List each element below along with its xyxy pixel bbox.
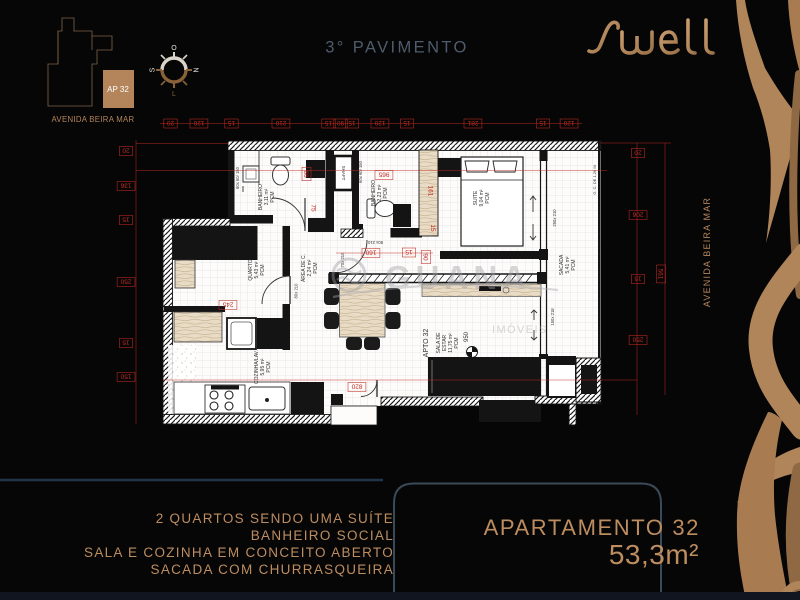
svg-text:206: 206 xyxy=(632,211,643,218)
svg-text:GUANA: GUANA xyxy=(385,259,531,296)
svg-text:AP 32: AP 32 xyxy=(107,85,129,94)
svg-text:L: L xyxy=(172,91,176,98)
svg-text:53,3m²: 53,3m² xyxy=(609,539,699,570)
svg-text:PCM: PCM xyxy=(485,192,491,203)
svg-text:15: 15 xyxy=(429,224,436,232)
svg-text:BANHEIRO SOCIAL: BANHEIRO SOCIAL xyxy=(251,528,394,543)
svg-text:80x 210: 80x 210 xyxy=(367,240,383,245)
svg-text:15: 15 xyxy=(122,339,130,346)
svg-text:PCM: PCM xyxy=(383,187,389,198)
svg-text:3° PAVIMENTO: 3° PAVIMENTO xyxy=(325,39,469,57)
svg-text:281: 281 xyxy=(467,119,478,126)
svg-text:20: 20 xyxy=(634,149,642,156)
svg-text:120: 120 xyxy=(563,119,574,126)
svg-text:G. C. DE 1,26 M: G. C. DE 1,26 M xyxy=(592,165,597,194)
svg-text:PCM: PCM xyxy=(266,361,272,372)
svg-text:561: 561 xyxy=(657,269,664,280)
svg-text:PCM: PCM xyxy=(454,337,460,348)
svg-text:90: 90 xyxy=(422,253,429,261)
svg-text:15: 15 xyxy=(634,275,642,282)
svg-text:80x 210: 80x 210 xyxy=(294,283,299,299)
svg-text:90: 90 xyxy=(337,119,345,126)
svg-text:S: S xyxy=(150,67,157,72)
svg-text:15: 15 xyxy=(325,119,333,126)
svg-text:15: 15 xyxy=(405,248,413,255)
svg-text:950: 950 xyxy=(464,331,470,342)
svg-text:60x 60/ 150: 60x 60/ 150 xyxy=(358,160,363,183)
svg-text:PCM: PCM xyxy=(571,259,577,270)
svg-text:SHAFT: SHAFT xyxy=(341,166,346,181)
svg-text:86: 86 xyxy=(302,170,309,178)
svg-text:150: 150 xyxy=(120,373,131,380)
svg-text:245: 245 xyxy=(222,301,233,308)
svg-text:AVENIDA BEIRA MAR: AVENIDA BEIRA MAR xyxy=(702,197,712,307)
svg-text:210: 210 xyxy=(275,119,286,126)
svg-text:15: 15 xyxy=(539,119,547,126)
svg-text:2 QUARTOS SENDO UMA SUÍTE: 2 QUARTOS SENDO UMA SUÍTE xyxy=(156,511,394,526)
svg-text:15: 15 xyxy=(122,216,130,223)
svg-text:250: 250 xyxy=(120,278,131,285)
svg-text:PCM: PCM xyxy=(313,262,319,273)
svg-text:IMÓVEIS: IMÓVEIS xyxy=(492,323,548,336)
svg-text:60x 60/ 150: 60x 60/ 150 xyxy=(235,166,240,189)
svg-text:15: 15 xyxy=(403,119,411,126)
svg-text:APTO 32: APTO 32 xyxy=(423,329,430,358)
svg-text:O: O xyxy=(171,45,177,52)
svg-text:150x 218: 150x 218 xyxy=(550,308,555,326)
svg-text:PCM: PCM xyxy=(260,264,266,275)
svg-text:ÁREA DE C.: ÁREA DE C. xyxy=(300,254,307,282)
svg-text:250x 210: 250x 210 xyxy=(552,209,557,227)
svg-text:SACADA COM CHURRASQUEIRA: SACADA COM CHURRASQUEIRA xyxy=(151,562,394,577)
svg-text:PCM: PCM xyxy=(270,191,276,202)
svg-text:120: 120 xyxy=(193,119,204,126)
svg-text:20: 20 xyxy=(122,147,130,154)
svg-text:SALA E COZINHA EM CONCEITO ABE: SALA E COZINHA EM CONCEITO ABERTO xyxy=(84,545,394,560)
svg-text:136: 136 xyxy=(120,182,131,189)
svg-text:20: 20 xyxy=(167,119,175,126)
svg-text:N: N xyxy=(192,67,199,72)
svg-text:120: 120 xyxy=(374,119,385,126)
svg-text:15: 15 xyxy=(348,119,356,126)
svg-text:75: 75 xyxy=(310,204,317,212)
svg-text:15: 15 xyxy=(228,119,236,126)
svg-text:820: 820 xyxy=(351,383,362,390)
svg-text:250: 250 xyxy=(632,336,643,343)
svg-text:160: 160 xyxy=(365,249,376,256)
svg-text:161: 161 xyxy=(427,186,434,197)
svg-text:AVENIDA BEIRA MAR: AVENIDA BEIRA MAR xyxy=(52,115,135,124)
svg-text:965: 965 xyxy=(378,171,389,178)
svg-text:APARTAMENTO 32: APARTAMENTO 32 xyxy=(484,515,700,540)
